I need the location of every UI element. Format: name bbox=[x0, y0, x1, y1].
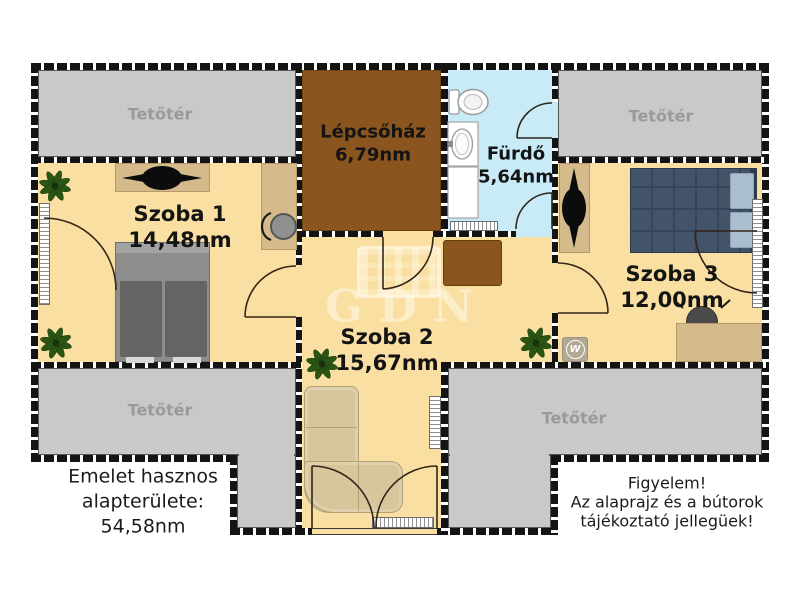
bed-foot bbox=[173, 357, 201, 363]
room-name: Lépcsőház bbox=[320, 122, 426, 145]
double-bed bbox=[115, 242, 210, 362]
cabinet bbox=[443, 240, 502, 286]
wall-segment bbox=[31, 455, 237, 462]
room-area: 5,64nm bbox=[478, 166, 554, 189]
bed-duvet bbox=[120, 281, 162, 357]
note-line: 54,58nm bbox=[68, 515, 218, 540]
desk-chair bbox=[270, 213, 297, 240]
window-radiator bbox=[752, 199, 763, 308]
desk bbox=[676, 323, 762, 362]
room-name: Szoba 1 bbox=[128, 201, 231, 227]
wall-segment bbox=[31, 63, 769, 70]
double-bed bbox=[630, 168, 757, 253]
disclaimer-note: Figyelem! Az alaprajz és a bútorok tájék… bbox=[571, 474, 764, 531]
wall-segment bbox=[551, 455, 769, 462]
gdn-mini-badge-icon: W bbox=[562, 337, 588, 362]
wall-segment bbox=[31, 63, 38, 462]
wall-segment bbox=[762, 63, 769, 462]
room-area: 6,79nm bbox=[320, 144, 426, 167]
note-line: Figyelem! bbox=[571, 474, 764, 493]
room1-label: Szoba 1 14,48nm bbox=[128, 201, 231, 254]
note-line: alapterülete: bbox=[68, 490, 218, 515]
wall-segment bbox=[437, 528, 558, 535]
door-opening bbox=[516, 231, 552, 237]
wall-segment bbox=[551, 455, 558, 535]
attic-area-bottom-left-col bbox=[237, 455, 296, 528]
attic-area-bottom-right-col bbox=[448, 455, 551, 528]
wall-segment bbox=[31, 362, 302, 368]
door-opening bbox=[552, 263, 558, 313]
door-opening bbox=[296, 265, 302, 317]
window-radiator bbox=[450, 221, 498, 231]
balcony-door-opening bbox=[312, 528, 437, 535]
bathroom-label: Fürdő 5,64nm bbox=[478, 144, 554, 189]
room-area: 14,48nm bbox=[128, 227, 231, 253]
dresser bbox=[559, 163, 590, 253]
couch-section-horizontal bbox=[304, 461, 403, 513]
room-area: 12,00nm bbox=[620, 287, 723, 313]
wall-segment bbox=[552, 313, 558, 368]
bed-foot bbox=[126, 357, 154, 363]
bed-pillow bbox=[730, 173, 754, 209]
window-radiator bbox=[39, 203, 50, 305]
couch-seam bbox=[306, 427, 357, 428]
room-name: Szoba 2 bbox=[335, 324, 438, 350]
wall-segment bbox=[441, 63, 448, 237]
dresser bbox=[115, 163, 210, 192]
attic-label-top-left: Tetőtér bbox=[128, 105, 193, 124]
note-line: Az alaprajz és a bútorok bbox=[571, 493, 764, 512]
window-radiator bbox=[429, 396, 441, 449]
room-name: Fürdő bbox=[478, 144, 554, 167]
bed-pillow bbox=[730, 212, 754, 248]
wall-segment bbox=[296, 317, 302, 533]
floor-plan: GDN bbox=[0, 0, 800, 600]
room2-label: Szoba 2 15,67nm bbox=[335, 324, 438, 377]
attic-label-bottom-right: Tetőtér bbox=[542, 409, 607, 428]
bed-duvet bbox=[165, 281, 207, 357]
attic-label-top-right: Tetőtér bbox=[629, 107, 694, 126]
door-opening bbox=[552, 102, 558, 138]
floor-area-note: Emelet hasznos alapterülete: 54,58nm bbox=[68, 465, 218, 540]
wall-segment bbox=[441, 362, 769, 368]
attic-fill-patch bbox=[239, 453, 294, 457]
note-line: tájékoztató jellegüek! bbox=[571, 512, 764, 531]
couch-seam bbox=[358, 463, 359, 511]
wall-segment bbox=[441, 362, 448, 535]
room-area: 15,67nm bbox=[335, 350, 438, 376]
wall-segment bbox=[296, 231, 383, 237]
stairwell-label: Lépcsőház 6,79nm bbox=[320, 122, 426, 167]
attic-label-bottom-left: Tetőtér bbox=[128, 401, 193, 420]
note-line: Emelet hasznos bbox=[68, 465, 218, 490]
wall-segment bbox=[433, 231, 516, 237]
attic-fill-patch bbox=[450, 453, 549, 457]
room3-label: Szoba 3 12,00nm bbox=[620, 261, 723, 314]
room-name: Szoba 3 bbox=[620, 261, 723, 287]
door-opening bbox=[383, 231, 433, 237]
wall-segment bbox=[552, 63, 558, 102]
window-radiator bbox=[372, 517, 434, 528]
wall-segment bbox=[230, 455, 237, 535]
